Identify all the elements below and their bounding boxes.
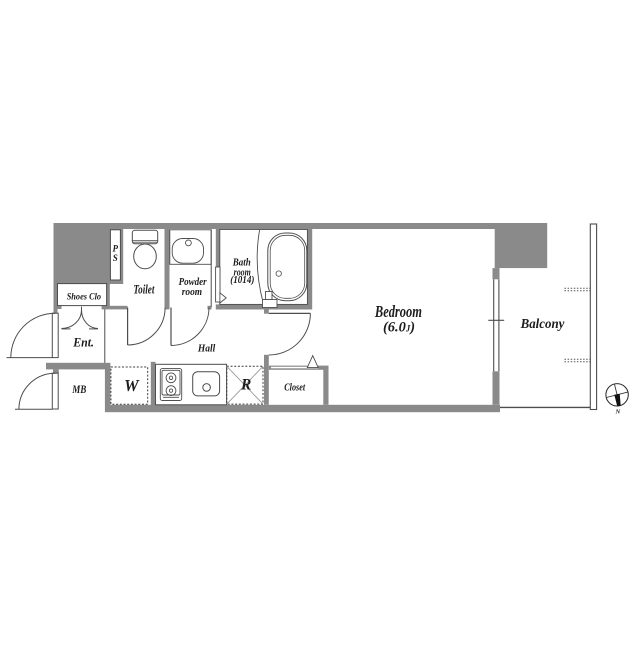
svg-text:Closet: Closet — [284, 381, 306, 393]
svg-text:(6.0J): (6.0J) — [383, 320, 415, 336]
svg-text:Bedroom: Bedroom — [374, 302, 422, 321]
svg-text:Ent.: Ent. — [72, 335, 94, 350]
svg-text:Hall: Hall — [197, 343, 215, 354]
svg-text:room: room — [182, 286, 203, 298]
svg-text:N: N — [614, 409, 620, 416]
svg-text:Balcony: Balcony — [520, 317, 565, 332]
svg-text:(1014): (1014) — [230, 275, 254, 286]
svg-text:Shoes Clo: Shoes Clo — [67, 292, 102, 302]
svg-text:Toilet: Toilet — [133, 282, 154, 296]
svg-text:MB: MB — [71, 384, 86, 396]
svg-text:W: W — [124, 376, 140, 395]
svg-text:R: R — [240, 377, 251, 394]
svg-text:S: S — [113, 253, 118, 263]
